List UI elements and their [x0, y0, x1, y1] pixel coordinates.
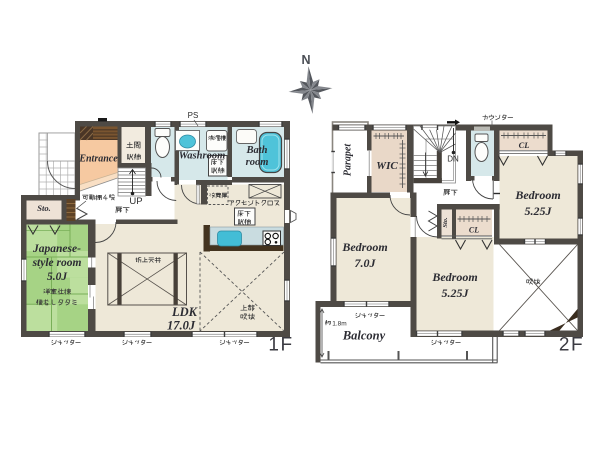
svg-text:5.0J: 5.0J — [47, 271, 68, 283]
svg-text:Parapet: Parapet — [343, 143, 354, 176]
svg-text:2F: 2F — [559, 335, 584, 356]
svg-text:PS: PS — [188, 111, 199, 120]
svg-text:UP: UP — [129, 196, 142, 207]
svg-text:Balcony: Balcony — [342, 329, 386, 343]
svg-text:CL: CL — [469, 226, 479, 235]
svg-text:5.25J: 5.25J — [525, 204, 553, 218]
svg-text:1F: 1F — [268, 335, 293, 356]
svg-text:N: N — [301, 53, 310, 67]
svg-text:Japanese-: Japanese- — [32, 243, 81, 255]
svg-text:Entrance: Entrance — [78, 154, 118, 165]
svg-text:Washroom: Washroom — [179, 151, 226, 162]
svg-text:Bedroom: Bedroom — [341, 240, 387, 254]
svg-text:style room: style room — [32, 257, 82, 269]
svg-text:Sto.: Sto. — [37, 203, 50, 213]
svg-text:Bedroom: Bedroom — [431, 270, 477, 284]
svg-text:7.0J: 7.0J — [355, 256, 377, 270]
svg-text:CL: CL — [519, 140, 530, 150]
svg-text:LDK: LDK — [171, 305, 199, 319]
svg-text:WIC: WIC — [376, 160, 398, 172]
svg-text:Bedroom: Bedroom — [514, 188, 560, 202]
svg-text:1.8m: 1.8m — [332, 320, 346, 327]
svg-text:Bath: Bath — [245, 145, 267, 156]
svg-text:DN: DN — [447, 155, 459, 164]
svg-text:room: room — [246, 157, 269, 168]
svg-text:17.0J: 17.0J — [167, 319, 196, 333]
svg-text:Sto.: Sto. — [442, 217, 449, 228]
svg-text:5.25J: 5.25J — [442, 286, 470, 300]
